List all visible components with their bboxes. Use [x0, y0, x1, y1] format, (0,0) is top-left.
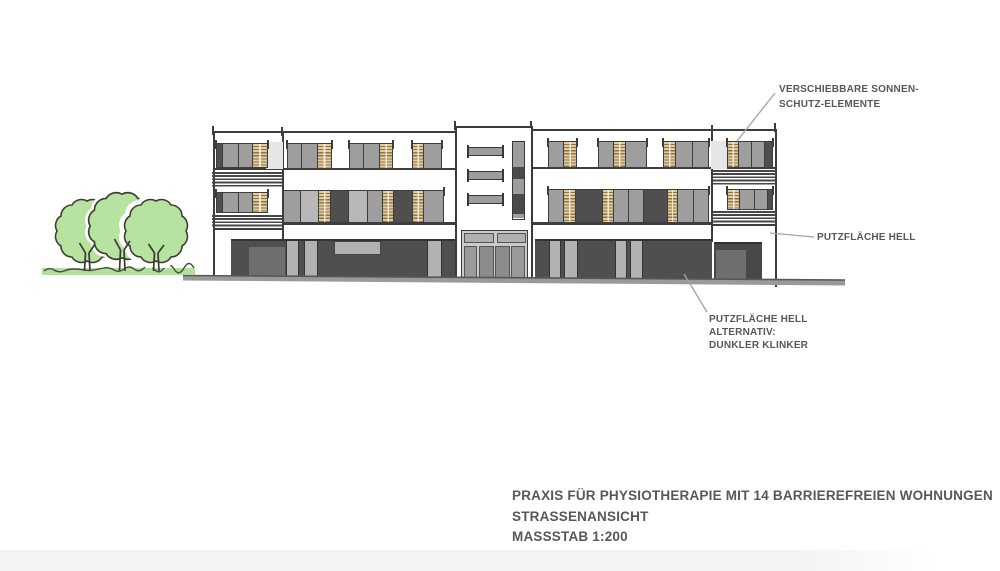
sun-louver-panel [668, 190, 678, 222]
annotation-line: ALTERNATIV: [709, 326, 808, 339]
elevation-drawing: VERSCHIEBBARE SONNEN- SCHUTZ-ELEMENTE PU… [0, 0, 1000, 571]
window-group [216, 143, 268, 168]
sketch-tick [774, 123, 776, 132]
sun-louver-panel [603, 190, 614, 222]
page-edge-shadow [0, 550, 935, 571]
window-group [727, 189, 773, 210]
window-panel [549, 142, 564, 167]
window-group [548, 189, 709, 223]
facade-line [213, 228, 283, 230]
sun-louver-panel [319, 191, 331, 222]
window-panel [549, 190, 564, 222]
window-panel [768, 190, 772, 209]
sun-louver-panel [380, 144, 392, 168]
balcony-railing [713, 211, 776, 224]
annotation-line: VERSCHIEBBARE SONNEN- [779, 82, 919, 97]
sun-louver-panel [564, 190, 576, 222]
window-panel [576, 190, 603, 222]
window-panel [752, 142, 765, 167]
tree-halo [121, 196, 191, 266]
tree-canopy [56, 200, 119, 263]
window-group [727, 141, 773, 168]
window-group [349, 143, 393, 169]
window-group [598, 141, 647, 168]
sun-louver-panel [413, 191, 424, 222]
entrance-transom [464, 233, 494, 243]
entrance-door-panel [511, 246, 525, 280]
storefront-pilaster [630, 241, 643, 279]
sun-louver-panel [318, 144, 331, 168]
window-panel [364, 144, 380, 168]
stair-window-bar [468, 171, 503, 180]
sun-louver-panel [253, 144, 267, 167]
facade-line [213, 131, 457, 133]
facade-line [711, 224, 777, 226]
leader-line-sun-protection [737, 93, 775, 141]
balcony-railing [713, 170, 776, 186]
annotation-plaster-light: PUTZFLÄCHE HELL [817, 230, 916, 245]
sketch-tick [281, 127, 283, 136]
sun-louver-panel [728, 142, 739, 167]
window-panel [368, 191, 383, 222]
grass-strip [42, 268, 195, 275]
strip-segment [513, 194, 524, 214]
window-panel [424, 144, 441, 168]
sketch-tick [711, 125, 713, 134]
annotation-sun-protection: VERSCHIEBBARE SONNEN- SCHUTZ-ELEMENTE [779, 82, 919, 112]
window-panel [599, 142, 614, 167]
storefront-pilaster [304, 241, 318, 279]
shading-wedge [711, 141, 727, 169]
window-panel [301, 191, 319, 222]
window-panel [678, 190, 694, 222]
annotation-line: PUTZFLÄCHE HELL [709, 313, 808, 326]
window-panel [693, 142, 708, 167]
annotation-line: DUNKLER KLINKER [709, 339, 808, 352]
storefront-pilaster [427, 241, 442, 279]
window-panel [424, 191, 443, 222]
window-panel [740, 190, 755, 209]
sun-louver-panel [728, 190, 740, 209]
storefront-pilaster [549, 241, 561, 279]
tree-trunk [115, 239, 131, 271]
window-panel [765, 142, 772, 167]
tree-canopy [89, 193, 156, 260]
sun-louver-panel [413, 144, 424, 168]
facade-line [213, 131, 215, 280]
window-group [548, 141, 577, 168]
balcony-railing [212, 215, 282, 228]
strip-segment [513, 214, 524, 218]
window-panel [350, 144, 364, 168]
window-panel [694, 190, 708, 222]
entrance-door-panel [464, 246, 477, 280]
window-panel [349, 191, 368, 222]
window-group [216, 192, 268, 213]
facade-line [531, 129, 777, 131]
scale-label: MASSSTAB 1:200 [512, 527, 993, 548]
storefront-inner-panel [716, 250, 746, 280]
facade-line [775, 129, 777, 287]
window-panel [302, 144, 318, 168]
grass-sketch-line [44, 264, 194, 273]
window-group [287, 143, 332, 169]
strip-segment [513, 167, 524, 179]
window-panel [394, 191, 413, 222]
annotation-plaster-alternative: PUTZFLÄCHE HELL ALTERNATIV: DUNKLER KLIN… [709, 313, 808, 352]
strip-segment [513, 179, 524, 194]
tree-trunk [80, 243, 96, 271]
window-panel [239, 144, 253, 167]
tree-canopy [125, 200, 188, 263]
window-panel [739, 142, 752, 167]
window-panel [239, 193, 253, 212]
window-group [663, 141, 709, 168]
window-panel [223, 144, 239, 167]
tree-halo [87, 191, 157, 261]
annotation-line: PUTZFLÄCHE HELL [817, 230, 916, 245]
window-panel [288, 144, 302, 168]
window-panel [626, 142, 646, 167]
window-panel [644, 190, 668, 222]
entrance-door-panel [479, 246, 494, 280]
storefront-pilaster [286, 241, 299, 279]
view-name: STRASSENANSICHT [512, 507, 993, 528]
storefront-window [334, 241, 381, 255]
sun-louver-panel [664, 142, 676, 167]
entrance-transom [497, 233, 526, 243]
sun-louver-panel [614, 142, 626, 167]
window-panel [629, 190, 644, 222]
storefront-inner-panel [249, 247, 285, 280]
window-panel [284, 191, 301, 222]
sun-louver-panel [253, 193, 267, 212]
entrance-door-panel [495, 246, 510, 280]
stair-window-bar [468, 147, 503, 156]
window-panel [614, 190, 629, 222]
window-panel [755, 190, 768, 209]
storefront-pilaster [564, 241, 578, 279]
window-group [283, 190, 444, 223]
window-panel [331, 191, 349, 222]
annotation-line: SCHUTZ-ELEMENTE [779, 97, 919, 112]
balcony-railing [212, 172, 282, 187]
window-group [412, 143, 442, 169]
sketch-tick [212, 126, 214, 135]
strip-segment [513, 142, 524, 167]
window-panel [676, 142, 693, 167]
storefront-pilaster [615, 241, 627, 279]
tree-trunk [149, 244, 165, 271]
sun-louver-panel [564, 142, 576, 167]
elevator-strip-window [512, 141, 525, 220]
stair-window-bar [468, 195, 503, 204]
drawing-title: PRAXIS FÜR PHYSIOTHERAPIE MIT 14 BARRIER… [512, 486, 993, 507]
sun-louver-panel [383, 191, 394, 222]
title-block: PRAXIS FÜR PHYSIOTHERAPIE MIT 14 BARRIER… [512, 486, 993, 548]
window-panel [223, 193, 239, 212]
